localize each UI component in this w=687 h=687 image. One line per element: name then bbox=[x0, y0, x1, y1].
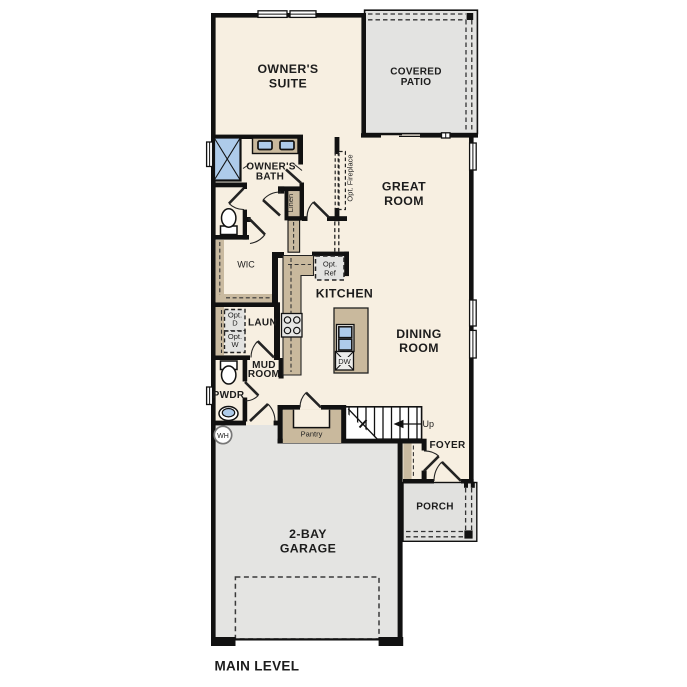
svg-text:WIC: WIC bbox=[237, 260, 255, 270]
svg-text:2-BAY: 2-BAY bbox=[289, 527, 327, 541]
svg-text:COVERED: COVERED bbox=[390, 67, 442, 78]
svg-text:Up: Up bbox=[423, 419, 435, 429]
svg-text:Linen: Linen bbox=[286, 194, 295, 212]
svg-text:PORCH: PORCH bbox=[416, 502, 454, 513]
svg-text:FOYER: FOYER bbox=[430, 440, 466, 451]
svg-text:DW: DW bbox=[338, 357, 351, 366]
svg-text:SUITE: SUITE bbox=[269, 77, 307, 91]
svg-text:KITCHEN: KITCHEN bbox=[316, 287, 373, 301]
svg-text:ROOM: ROOM bbox=[248, 369, 280, 380]
svg-text:D: D bbox=[232, 319, 238, 328]
svg-text:PWDR: PWDR bbox=[213, 390, 245, 401]
svg-text:MAIN LEVEL: MAIN LEVEL bbox=[215, 659, 300, 674]
svg-text:ROOM: ROOM bbox=[384, 194, 424, 208]
svg-text:DINING: DINING bbox=[396, 327, 441, 341]
svg-text:ROOM: ROOM bbox=[399, 341, 439, 355]
svg-text:Opt. Fireplace: Opt. Fireplace bbox=[346, 154, 355, 201]
svg-text:OWNER'S: OWNER'S bbox=[257, 62, 318, 76]
svg-text:GREAT: GREAT bbox=[382, 180, 426, 194]
svg-text:Pantry: Pantry bbox=[301, 430, 323, 439]
svg-text:Ref: Ref bbox=[324, 269, 337, 278]
svg-text:PATIO: PATIO bbox=[401, 77, 432, 88]
svg-text:LAUN: LAUN bbox=[248, 318, 277, 329]
svg-text:GARAGE: GARAGE bbox=[280, 542, 336, 556]
svg-text:W: W bbox=[231, 340, 239, 349]
svg-text:Opt.: Opt. bbox=[323, 260, 337, 269]
svg-text:BATH: BATH bbox=[256, 172, 284, 183]
svg-text:WH: WH bbox=[217, 433, 229, 440]
